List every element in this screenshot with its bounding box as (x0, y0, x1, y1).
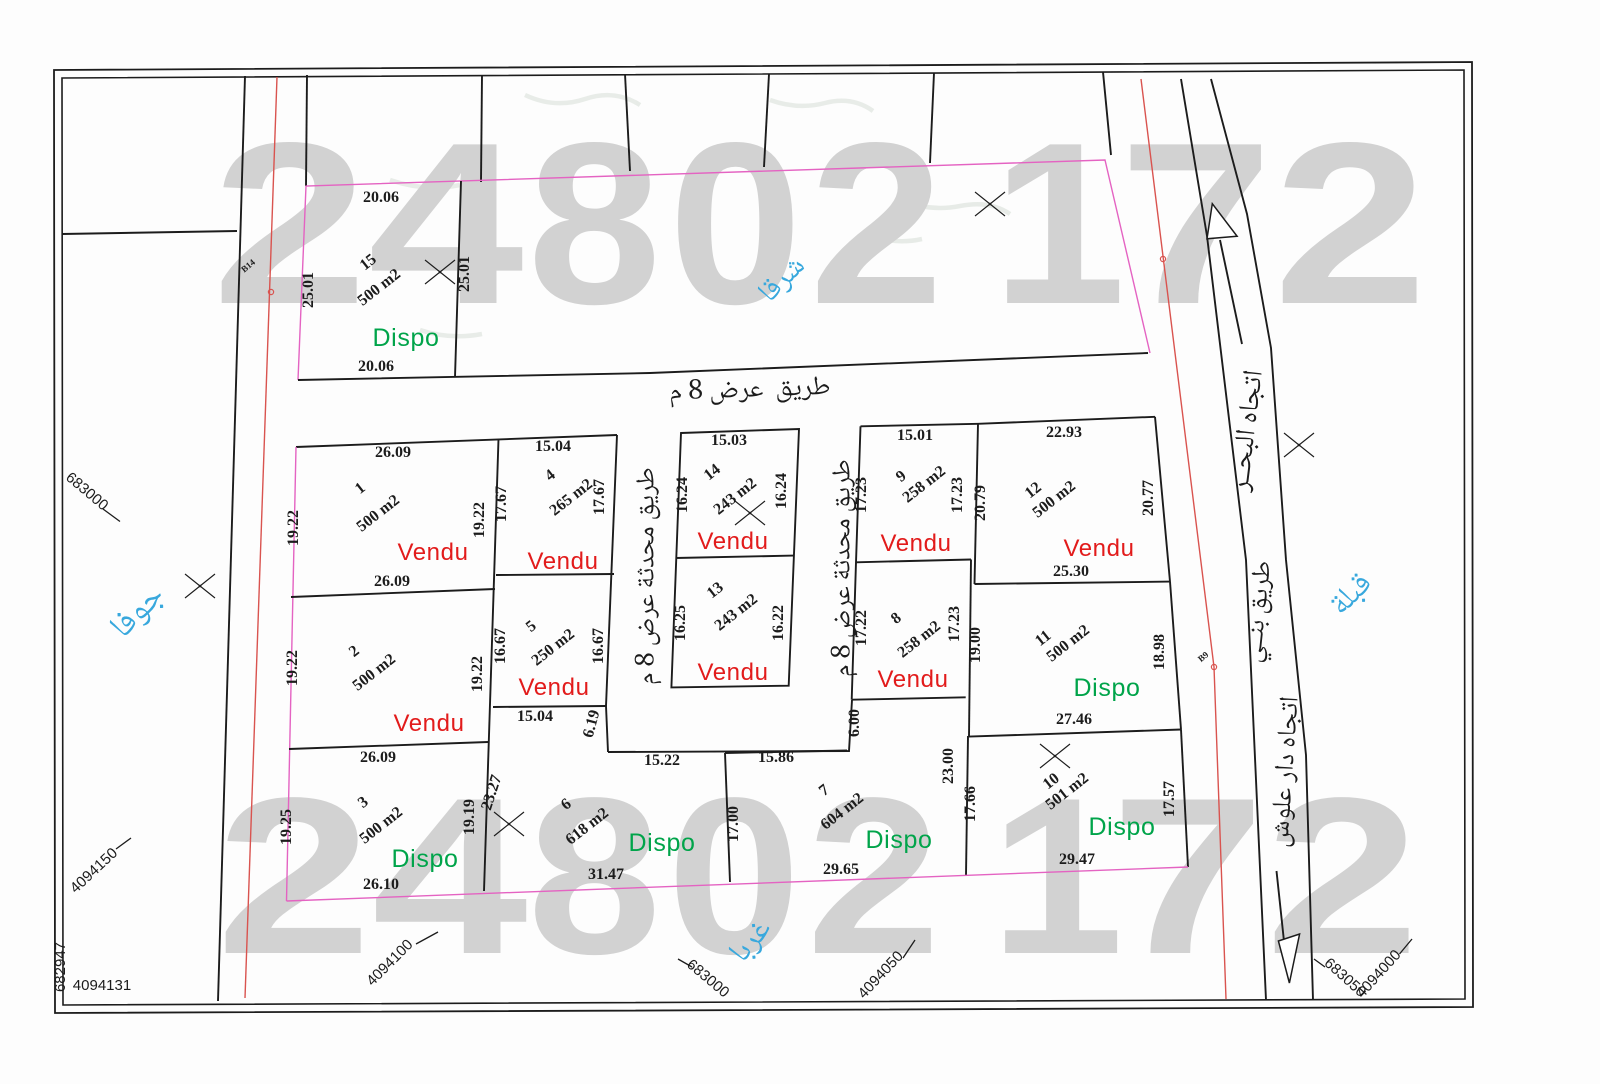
svg-text:15.03: 15.03 (711, 432, 747, 449)
svg-text:17.23: 17.23 (949, 477, 966, 513)
svg-text:Dispo: Dispo (1074, 674, 1141, 702)
svg-text:16.67: 16.67 (590, 628, 607, 664)
svg-text:Dispo: Dispo (1089, 813, 1156, 841)
svg-text:19.22: 19.22 (284, 650, 301, 686)
svg-text:26.09: 26.09 (374, 573, 410, 590)
svg-text:31.47: 31.47 (588, 866, 624, 883)
svg-text:17.67: 17.67 (591, 479, 608, 515)
svg-text:802: 802 (528, 95, 951, 352)
svg-text:17.22: 17.22 (853, 610, 870, 646)
svg-text:16.24: 16.24 (773, 473, 790, 509)
svg-text:16.67: 16.67 (492, 628, 509, 664)
svg-text:Vendu: Vendu (527, 548, 598, 575)
svg-text:19.22: 19.22 (285, 510, 302, 546)
svg-text:19.22: 19.22 (471, 502, 488, 538)
svg-text:Dispo: Dispo (373, 324, 440, 352)
svg-text:15.01: 15.01 (897, 427, 933, 444)
svg-text:29.65: 29.65 (823, 861, 859, 878)
svg-text:20.06: 20.06 (358, 358, 394, 375)
svg-text:Dispo: Dispo (629, 829, 696, 857)
svg-text:15.04: 15.04 (517, 708, 553, 725)
svg-text:22.93: 22.93 (1046, 424, 1082, 441)
svg-text:19.00: 19.00 (967, 627, 984, 663)
svg-text:20.79: 20.79 (972, 485, 989, 521)
svg-text:17.67: 17.67 (493, 486, 510, 522)
svg-text:29.47: 29.47 (1059, 851, 1095, 868)
svg-text:26.10: 26.10 (363, 876, 399, 893)
svg-text:Vendu: Vendu (697, 528, 768, 555)
svg-text:19.19: 19.19 (461, 799, 478, 835)
svg-text:Vendu: Vendu (697, 659, 768, 686)
svg-text:Vendu: Vendu (393, 710, 464, 737)
svg-text:20.06: 20.06 (363, 189, 399, 206)
svg-text:25.01: 25.01 (456, 256, 473, 292)
svg-text:Vendu: Vendu (1063, 535, 1134, 562)
svg-text:1: 1 (992, 95, 1126, 352)
svg-text:Vendu: Vendu (518, 674, 589, 701)
svg-text:16.25: 16.25 (672, 605, 689, 641)
svg-text:26.09: 26.09 (375, 444, 411, 461)
svg-text:19.22: 19.22 (469, 656, 486, 692)
svg-text:20.77: 20.77 (1140, 480, 1157, 516)
svg-text:27.46: 27.46 (1056, 711, 1092, 728)
svg-text:17.23: 17.23 (946, 606, 963, 642)
svg-text:17.66: 17.66 (962, 786, 979, 822)
svg-text:Vendu: Vendu (877, 666, 948, 693)
svg-text:18.98: 18.98 (1151, 634, 1168, 670)
svg-text:16.24: 16.24 (674, 477, 691, 513)
svg-text:15.04: 15.04 (535, 438, 571, 455)
svg-text:15.86: 15.86 (758, 749, 794, 766)
svg-text:4094131: 4094131 (73, 977, 131, 994)
svg-text:25.30: 25.30 (1053, 563, 1089, 580)
svg-text:682947: 682947 (52, 942, 69, 992)
svg-text:17.00: 17.00 (725, 806, 742, 842)
svg-text:17.57: 17.57 (1161, 781, 1178, 817)
svg-text:Dispo: Dispo (866, 826, 933, 854)
svg-text:24: 24 (212, 95, 525, 352)
svg-text:19.25: 19.25 (278, 809, 295, 845)
svg-text:Dispo: Dispo (392, 845, 459, 873)
svg-text:15.22: 15.22 (644, 752, 680, 769)
svg-text:72: 72 (1119, 95, 1428, 352)
svg-text:25.01: 25.01 (300, 272, 317, 308)
svg-text:23.00: 23.00 (940, 748, 957, 784)
svg-text:6.00: 6.00 (846, 709, 863, 737)
svg-text:Vendu: Vendu (880, 530, 951, 557)
svg-text:Vendu: Vendu (397, 539, 468, 566)
svg-text:16.22: 16.22 (770, 605, 787, 641)
svg-text:26.09: 26.09 (360, 749, 396, 766)
svg-text:17.23: 17.23 (853, 477, 870, 513)
